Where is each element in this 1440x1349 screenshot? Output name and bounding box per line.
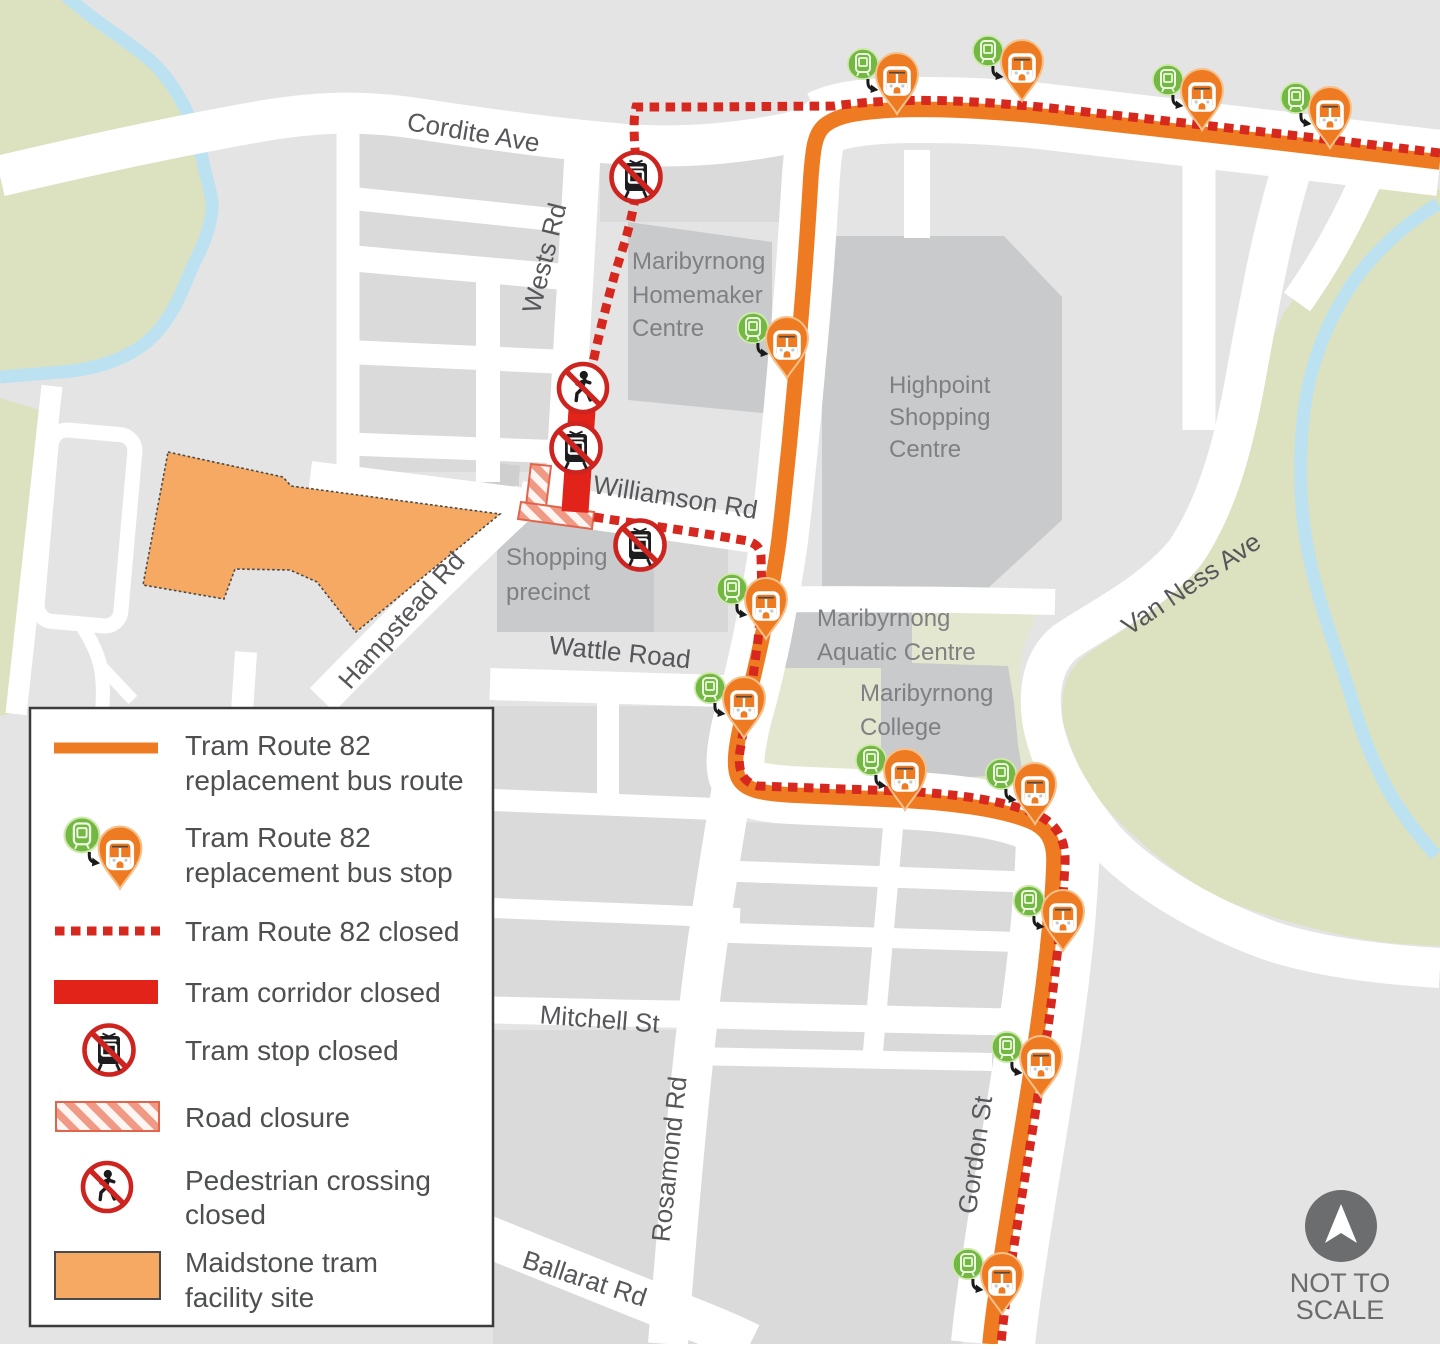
svg-text:closed: closed [185, 1199, 266, 1230]
svg-text:Maribyrnong: Maribyrnong [817, 605, 950, 632]
svg-text:replacement bus route: replacement bus route [185, 765, 464, 796]
svg-text:replacement bus stop: replacement bus stop [185, 857, 453, 888]
svg-text:Shopping: Shopping [506, 544, 607, 571]
svg-text:Homemaker: Homemaker [632, 282, 763, 309]
svg-text:Shopping: Shopping [889, 404, 990, 431]
svg-text:Maribyrnong: Maribyrnong [632, 248, 765, 275]
svg-text:Tram stop closed: Tram stop closed [185, 1035, 399, 1066]
svg-text:Tram corridor closed: Tram corridor closed [185, 977, 441, 1008]
svg-text:Maribyrnong: Maribyrnong [860, 680, 993, 707]
svg-text:Pedestrian crossing: Pedestrian crossing [185, 1165, 431, 1196]
svg-text:SCALE: SCALE [1296, 1295, 1385, 1325]
svg-text:facility site: facility site [185, 1282, 314, 1313]
svg-text:Highpoint: Highpoint [889, 372, 991, 399]
svg-text:precinct: precinct [506, 579, 590, 606]
svg-text:Centre: Centre [889, 436, 961, 463]
svg-text:College: College [860, 714, 941, 741]
svg-text:Tram Route 82: Tram Route 82 [185, 822, 371, 853]
svg-text:Road closure: Road closure [185, 1102, 350, 1133]
svg-text:Aquatic Centre: Aquatic Centre [817, 639, 976, 666]
svg-text:NOT TO: NOT TO [1290, 1268, 1391, 1298]
svg-text:Maidstone tram: Maidstone tram [185, 1247, 378, 1278]
svg-text:Tram Route 82 closed: Tram Route 82 closed [185, 916, 459, 947]
svg-text:Centre: Centre [632, 315, 704, 342]
svg-text:Tram Route 82: Tram Route 82 [185, 730, 371, 761]
